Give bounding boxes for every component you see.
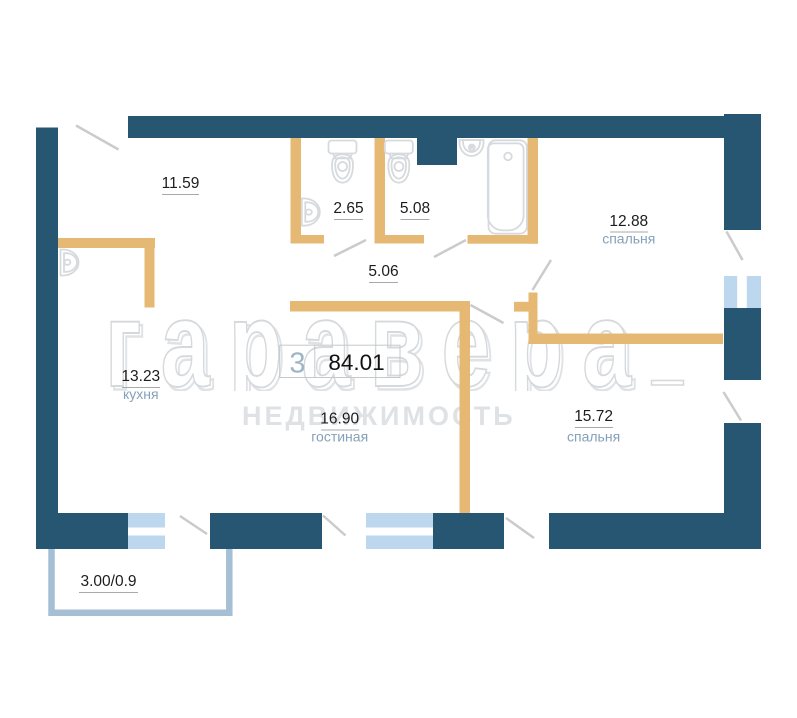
svg-text:12.88: 12.88	[609, 213, 648, 230]
svg-text:11.59: 11.59	[162, 175, 200, 192]
svg-text:5.06: 5.06	[368, 263, 398, 280]
svg-text:кухня: кухня	[123, 386, 159, 402]
svg-text:2.65: 2.65	[333, 200, 363, 217]
svg-text:3: 3	[289, 348, 305, 380]
svg-text:13.23: 13.23	[121, 368, 160, 385]
svg-text:5.08: 5.08	[400, 200, 430, 217]
svg-text:гостиная: гостиная	[311, 429, 368, 445]
svg-text:3.00/0.9: 3.00/0.9	[80, 573, 136, 590]
svg-text:15.72: 15.72	[574, 408, 613, 425]
svg-text:84.01: 84.01	[328, 350, 384, 375]
svg-text:спальня: спальня	[567, 429, 620, 445]
svg-text:16.90: 16.90	[320, 411, 359, 428]
svg-text:НЕДВИЖИМОСТЬ: НЕДВИЖИМОСТЬ	[242, 401, 516, 431]
svg-text:спальня: спальня	[602, 231, 655, 247]
